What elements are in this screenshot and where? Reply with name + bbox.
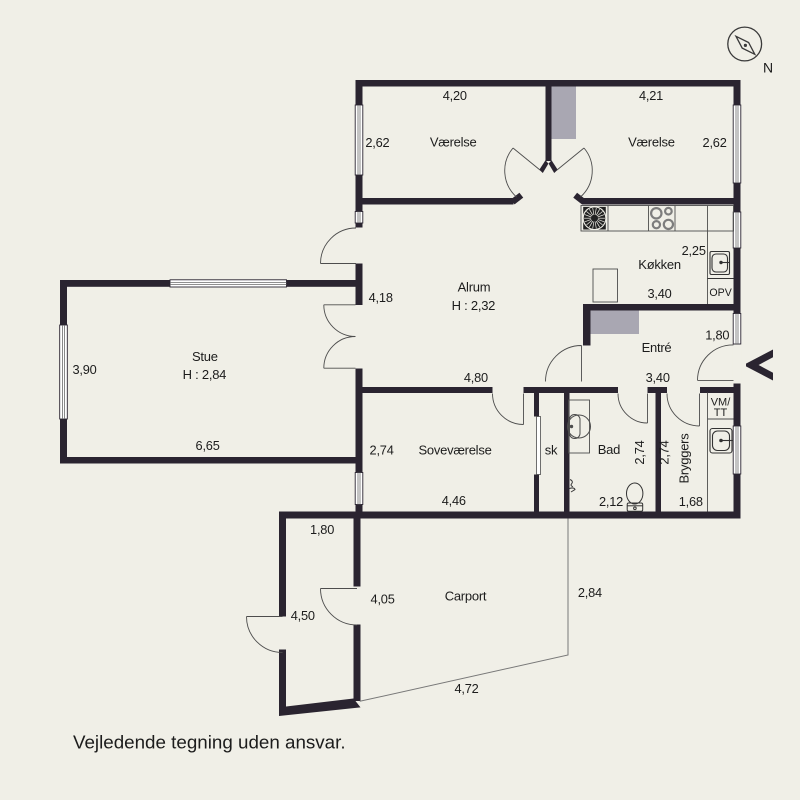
svg-text:Alrum: Alrum	[458, 280, 491, 295]
svg-text:4,05: 4,05	[371, 591, 395, 606]
svg-text:1,80: 1,80	[705, 328, 729, 343]
svg-text:4,20: 4,20	[443, 88, 467, 103]
svg-text:3,90: 3,90	[72, 362, 96, 377]
svg-text:sk: sk	[545, 443, 558, 458]
svg-text:OPV: OPV	[709, 287, 732, 299]
svg-text:3,40: 3,40	[647, 286, 671, 301]
svg-text:Stue: Stue	[192, 349, 218, 364]
svg-text:Værelse: Værelse	[430, 135, 477, 150]
svg-text:2,62: 2,62	[365, 135, 389, 150]
svg-text:Soveværelse: Soveværelse	[418, 443, 491, 458]
svg-text:4,72: 4,72	[454, 681, 478, 696]
svg-text:Vejledende tegning uden ansvar: Vejledende tegning uden ansvar.	[73, 732, 346, 753]
svg-text:Bryggers: Bryggers	[677, 433, 692, 484]
svg-text:2,74: 2,74	[632, 440, 647, 464]
svg-text:4,80: 4,80	[464, 370, 488, 385]
svg-text:H : 2,32: H : 2,32	[452, 298, 496, 313]
svg-text:2,62: 2,62	[703, 135, 727, 150]
svg-text:2,84: 2,84	[578, 585, 602, 600]
svg-text:Bad: Bad	[598, 442, 620, 457]
svg-text:4,50: 4,50	[291, 608, 315, 623]
svg-text:2,12: 2,12	[599, 494, 623, 509]
svg-text:4,21: 4,21	[639, 88, 663, 103]
svg-text:1,68: 1,68	[679, 494, 703, 509]
svg-text:Carport: Carport	[445, 589, 487, 604]
svg-text:1,80: 1,80	[310, 522, 334, 537]
svg-text:TT: TT	[714, 407, 728, 419]
svg-text:Entré: Entré	[642, 340, 672, 355]
svg-text:4,18: 4,18	[369, 290, 393, 305]
svg-text:2,74: 2,74	[657, 440, 672, 464]
svg-text:Værelse: Værelse	[628, 135, 675, 150]
svg-text:3,40: 3,40	[646, 370, 670, 385]
svg-text:H : 2,84: H : 2,84	[183, 367, 227, 382]
svg-text:6,65: 6,65	[196, 438, 220, 453]
svg-text:Køkken: Køkken	[638, 257, 681, 272]
svg-text:N: N	[763, 60, 773, 76]
svg-text:2,25: 2,25	[682, 243, 706, 258]
svg-text:2,74: 2,74	[370, 443, 394, 458]
svg-text:4,46: 4,46	[442, 493, 466, 508]
